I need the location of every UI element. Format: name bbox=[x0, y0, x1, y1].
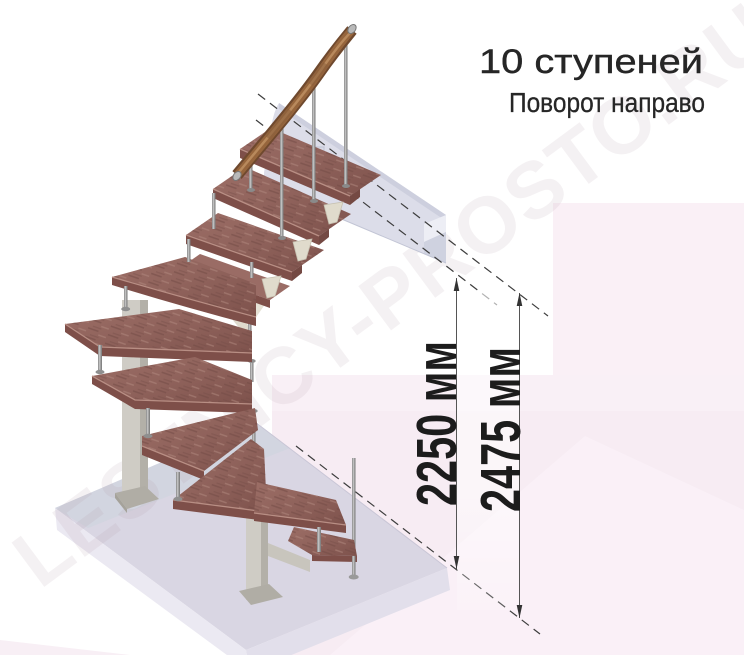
svg-text:2475 мм: 2475 мм bbox=[469, 347, 533, 512]
svg-text:2250 мм: 2250 мм bbox=[405, 341, 469, 506]
svg-text:10 ступеней: 10 ступеней bbox=[479, 43, 703, 81]
svg-text:Поворот направо: Поворот направо bbox=[509, 87, 705, 118]
